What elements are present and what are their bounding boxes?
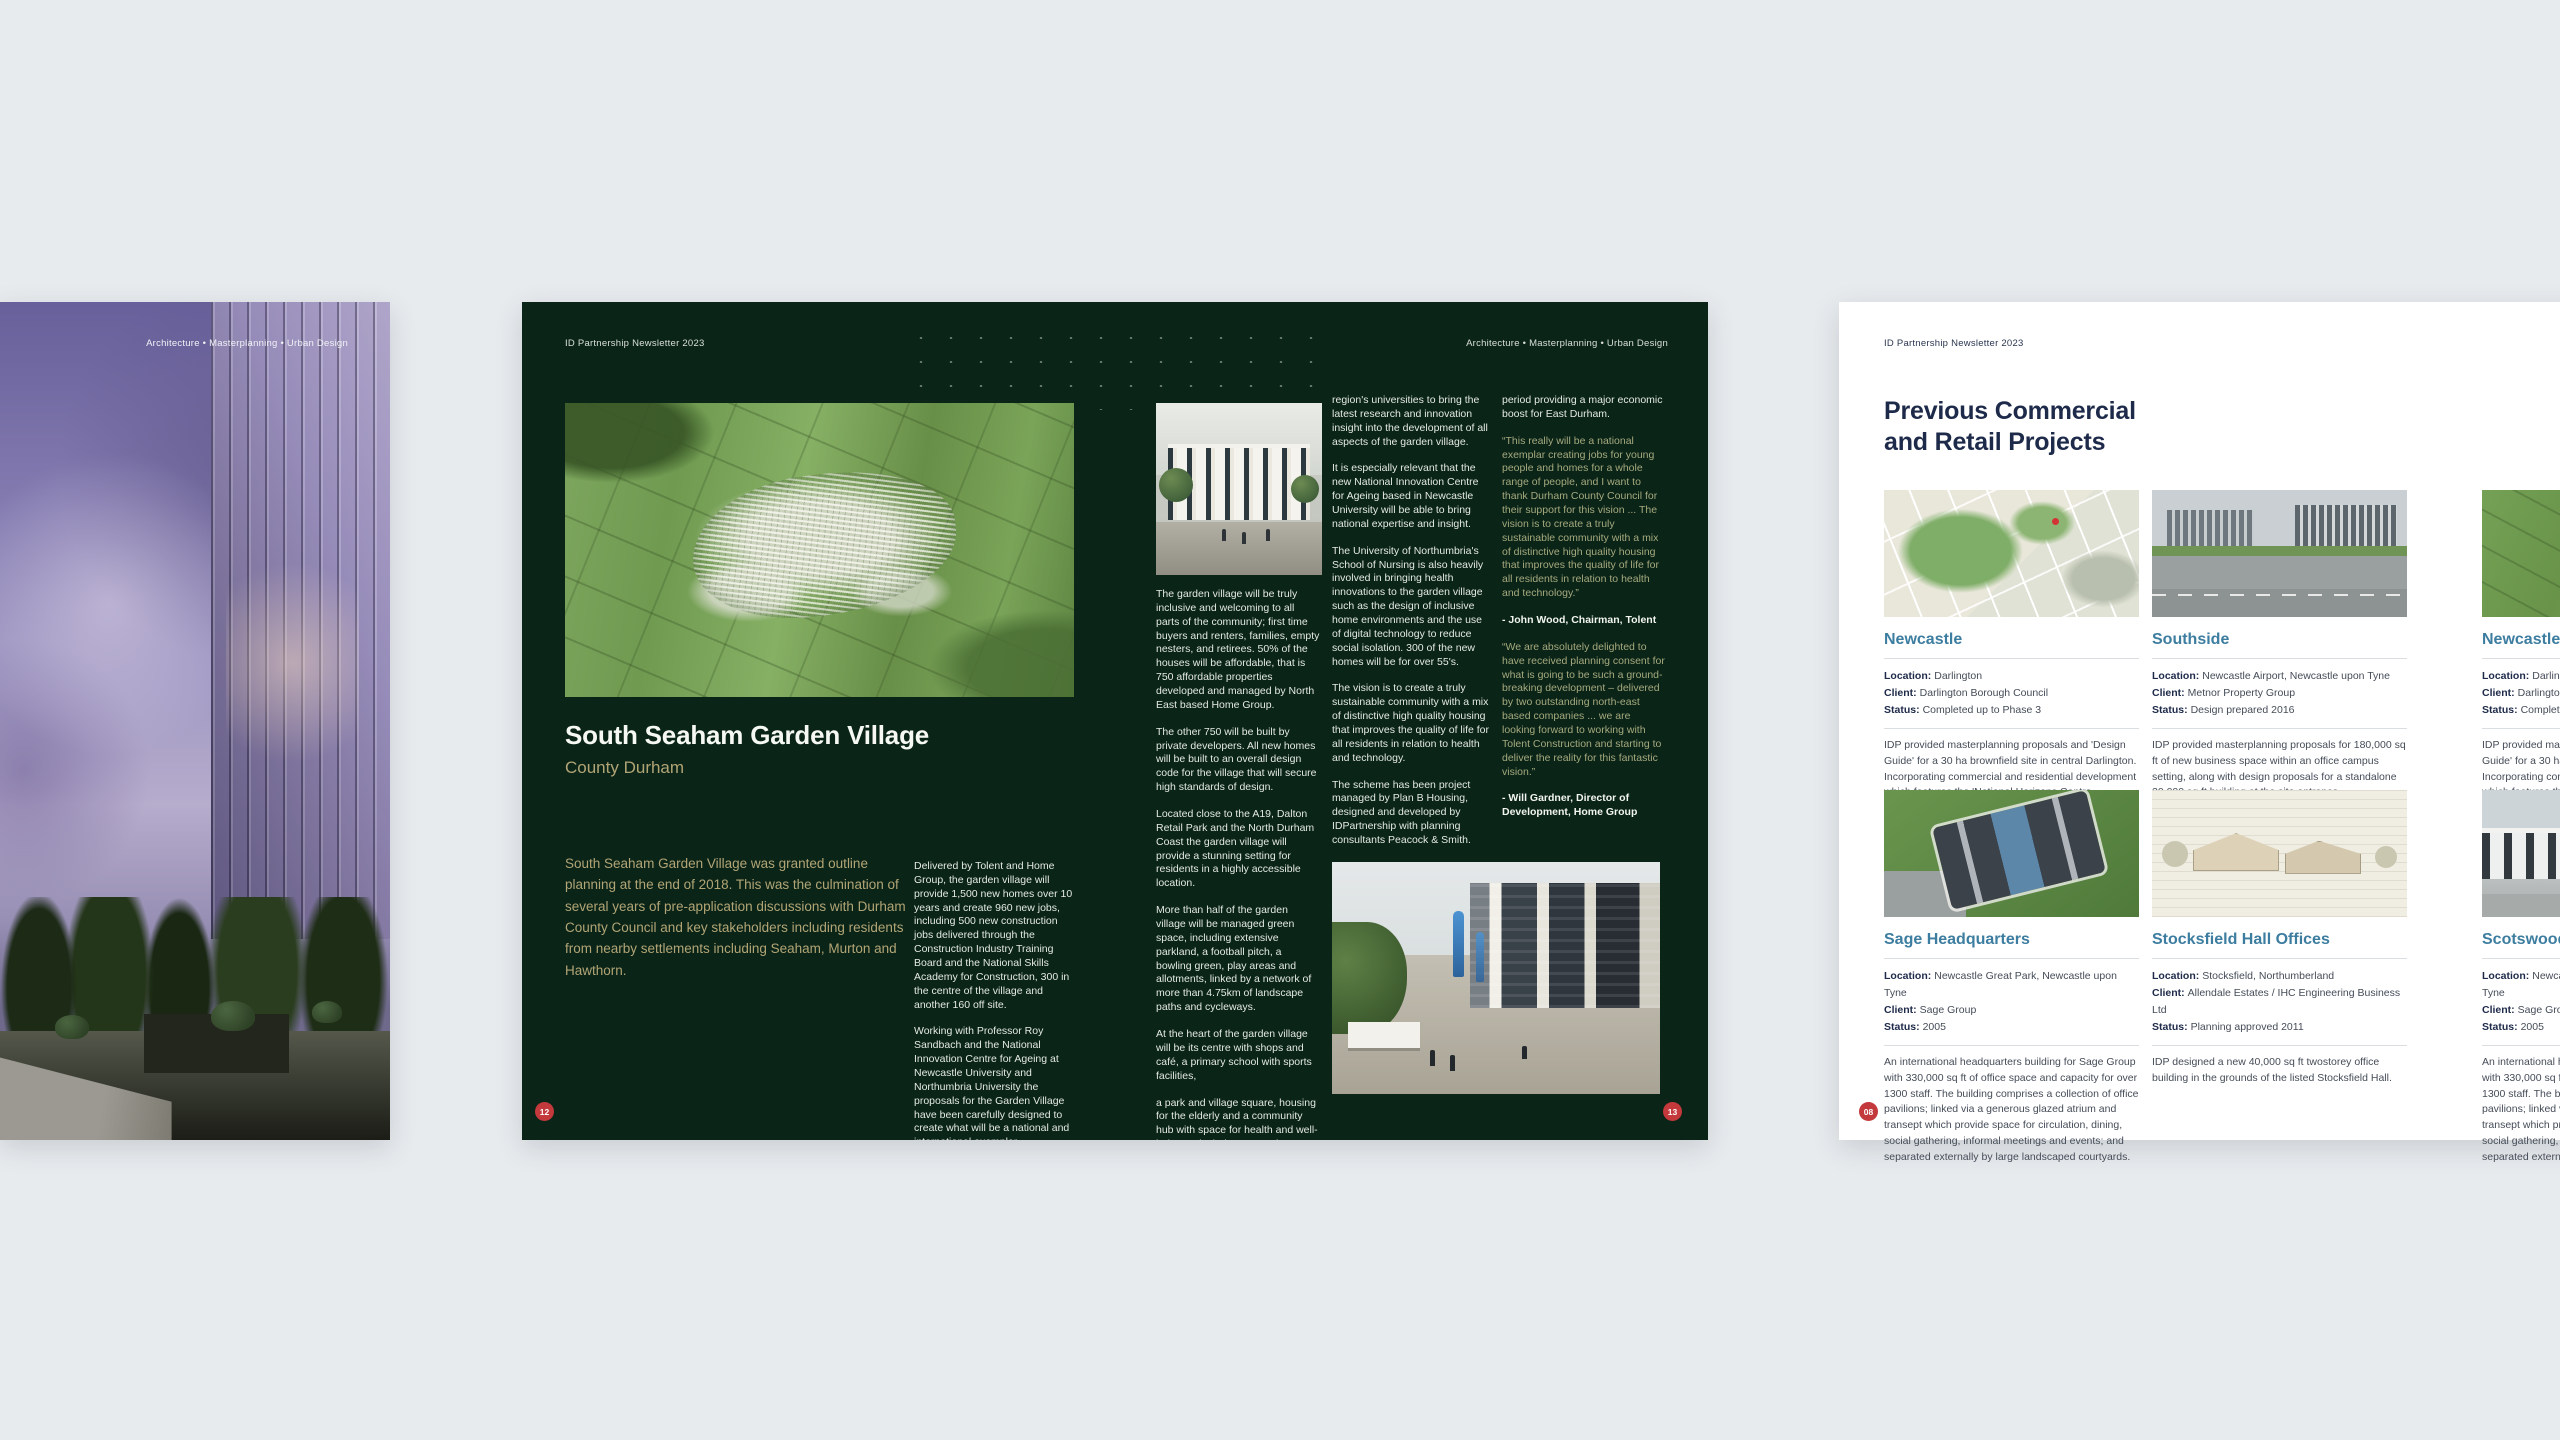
meta-value: 2005 (2521, 1021, 2544, 1033)
project-meta: Location:Darlington Client:Darlington Bo… (1884, 668, 2139, 719)
photo-detail (2162, 841, 2188, 867)
photo-detail (1470, 883, 1660, 1008)
photo-detail (1222, 529, 1226, 541)
meta-value: Design prepared 2016 (2191, 704, 2295, 716)
meta-label: Location: (2152, 970, 2199, 982)
paragraph: At the heart of the garden village will … (1156, 1028, 1320, 1083)
project-description: An international headquarters building f… (1884, 1055, 2139, 1165)
project-meta: Location:Newcastle Great Park, Newcastle… (2482, 968, 2560, 1036)
meta-label: Client: (1884, 1004, 1917, 1016)
project-meta: Location:Darlington Client:Darlington Bo… (2482, 668, 2560, 719)
photo-detail (1932, 790, 2106, 909)
masterplan-aerial-image (565, 403, 1074, 697)
photo-detail (2482, 833, 2560, 879)
text-column-1: Delivered by Tolent and Home Group, the … (914, 860, 1078, 1140)
meta-label: Status: (1884, 1021, 1920, 1033)
meta-value: Sage Group (2518, 1004, 2560, 1016)
project-card-newcastle: Newcastle Location:Darlington Client:Dar… (1884, 490, 2139, 801)
project-image-sage-aerial (1884, 790, 2139, 917)
text-column-4: period providing a major economic boost … (1502, 394, 1666, 833)
photo-detail (685, 458, 965, 630)
paragraph: More than half of the garden village wil… (1156, 904, 1320, 1015)
page-header-tagline: Architecture • Masterplanning • Urban De… (1466, 338, 1668, 349)
divider (2152, 958, 2407, 959)
photo-detail (211, 1001, 255, 1031)
project-image-aerial (2482, 490, 2560, 617)
photo-detail (2193, 833, 2280, 871)
project-title: Newcastle (1884, 631, 2139, 649)
divider (2482, 1045, 2560, 1046)
photo-detail (1348, 1022, 1420, 1048)
meta-value: Darlington Borough Council (1920, 687, 2048, 699)
meta-row: Status:2005 (2482, 1019, 2560, 1036)
meta-value: Darlington (1934, 670, 1982, 682)
meta-row: Client:Sage Group (1884, 1002, 2139, 1019)
project-card-newcastle-2: Newcastle F Location:Darlington Client:D… (2482, 490, 2560, 801)
photo-detail (1453, 911, 1464, 977)
photo-detail (1430, 1050, 1435, 1066)
page-number-badge: 08 (1859, 1102, 1878, 1121)
map-marker-icon (2052, 518, 2059, 525)
meta-value: Darlington Borough Council (2518, 687, 2560, 699)
photo-detail (2152, 594, 2407, 596)
photo-detail (1156, 522, 1322, 575)
photo-detail (1332, 922, 1407, 1033)
meta-row: Client:Darlington Borough Council (1884, 685, 2139, 702)
meta-value: 2005 (1923, 1021, 1946, 1033)
page-photo-left[interactable]: Architecture • Masterplanning • Urban De… (0, 302, 390, 1140)
paragraph: Delivered by Tolent and Home Group, the … (914, 860, 1078, 1012)
project-card-sage: Sage Headquarters Location:Newcastle Gre… (1884, 790, 2139, 1165)
paragraph: The University of Northumbria's School o… (1332, 545, 1492, 670)
article-title: South Seaham Garden Village (565, 720, 929, 751)
dot-grid-decoration (906, 326, 1318, 410)
project-card-scotswood: Scotswood Location:Newcastle Great Park,… (2482, 790, 2560, 1165)
project-meta: Location:Newcastle Airport, Newcastle up… (2152, 668, 2407, 719)
photo-detail (2375, 846, 2397, 868)
meta-row: Status:Design prepared 2016 (2152, 702, 2407, 719)
meta-value: Allendale Estates / IHC Engineering Busi… (2152, 987, 2400, 1016)
meta-value: Completed up to Phase 3 (2521, 704, 2560, 716)
paragraph: Located close to the A19, Dalton Retail … (1156, 808, 1320, 891)
divider (2482, 728, 2560, 729)
meta-label: Location: (1884, 970, 1931, 982)
meta-row: Client:Allendale Estates / IHC Engineeri… (2152, 985, 2407, 1019)
meta-label: Location: (2482, 670, 2529, 682)
meta-label: Status: (2482, 1021, 2518, 1033)
page-header-tagline: Architecture • Masterplanning • Urban De… (146, 338, 348, 349)
text-column-3: region's universities to bring the lates… (1332, 394, 1492, 943)
meta-label: Client: (2152, 687, 2185, 699)
meta-row: Location:Newcastle Airport, Newcastle up… (2152, 668, 2407, 685)
meta-label: Client: (2482, 687, 2515, 699)
divider (1884, 728, 2139, 729)
meta-label: Client: (2152, 987, 2185, 999)
meta-value: Newcastle Airport, Newcastle upon Tyne (2202, 670, 2390, 682)
meta-row: Client:Darlington Borough Council (2482, 685, 2560, 702)
divider (2152, 658, 2407, 659)
photo-detail (1266, 529, 1270, 541)
project-image-offices (2152, 490, 2407, 617)
meta-value: Stocksfield, Northumberland (2202, 970, 2334, 982)
quote-attribution: - Will Gardner, Director of Development,… (1502, 792, 1666, 820)
meta-row: Status:2005 (1884, 1019, 2139, 1036)
meta-row: Location:Newcastle Great Park, Newcastle… (1884, 968, 2139, 1002)
meta-value: Metnor Property Group (2188, 687, 2295, 699)
paragraph: region's universities to bring the lates… (1332, 394, 1492, 449)
page-number-badge: 12 (535, 1102, 554, 1121)
photo-detail (312, 1001, 342, 1023)
newsletter-header: ID Partnership Newsletter 2023 (565, 338, 705, 349)
page-number-badge: 13 (1663, 1102, 1682, 1121)
photo-detail (1242, 532, 1246, 544)
meta-value: Planning approved 2011 (2191, 1021, 2304, 1033)
photo-detail (1522, 1046, 1527, 1059)
paragraph: The other 750 will be built by private d… (1156, 726, 1320, 795)
meta-row: Client:Sage Group (2482, 1002, 2560, 1019)
meta-label: Status: (2152, 704, 2188, 716)
meta-row: Location:Darlington (2482, 668, 2560, 685)
meta-row: Client:Metnor Property Group (2152, 685, 2407, 702)
meta-label: Status: (1884, 704, 1920, 716)
page-title: Previous Commercial and Retail Projects (1884, 396, 2156, 458)
photo-detail (1450, 1055, 1455, 1071)
meta-label: Status: (2482, 704, 2518, 716)
project-meta: Location:Newcastle Great Park, Newcastle… (1884, 968, 2139, 1036)
paragraph: The garden village will be truly inclusi… (1156, 588, 1320, 713)
meta-row: Status:Planning approved 2011 (2152, 1019, 2407, 1036)
meta-label: Location: (2482, 970, 2529, 982)
meta-row: Status:Completed up to Phase 3 (2482, 702, 2560, 719)
paragraph: period providing a major economic boost … (1502, 394, 1666, 422)
project-title: Newcastle F (2482, 631, 2560, 649)
quote-attribution: - John Wood, Chairman, Tolent (1502, 614, 1666, 628)
project-title: Scotswood (2482, 931, 2560, 949)
article-title-block: South Seaham Garden Village County Durha… (565, 720, 929, 778)
project-description: An international headquarters building f… (2482, 1055, 2560, 1165)
pull-quote: “This really will be a national exemplar… (1502, 435, 1666, 601)
divider (1884, 658, 2139, 659)
pull-quote: “We are absolutely delighted to have rec… (1502, 641, 1666, 780)
photo-detail (1291, 475, 1319, 503)
project-meta: Location:Stocksfield, Northumberland Cli… (2152, 968, 2407, 1036)
divider (2152, 728, 2407, 729)
meta-value: Sage Group (1920, 1004, 1977, 1016)
paragraph: The scheme has been project managed by P… (1332, 779, 1492, 848)
page-south-seaham-spread[interactable]: ID Partnership Newsletter 2023 Architect… (522, 302, 1708, 1140)
meta-label: Location: (1884, 670, 1931, 682)
photo-detail (2285, 841, 2362, 874)
divider (2482, 958, 2560, 959)
meta-value: Darlington (2532, 670, 2560, 682)
project-title: Stocksfield Hall Offices (2152, 931, 2407, 949)
divider (2152, 1045, 2407, 1046)
project-title: Sage Headquarters (1884, 931, 2139, 949)
divider (2482, 658, 2560, 659)
innovation-hub-photo (1156, 403, 1322, 575)
meta-row: Status:Completed up to Phase 3 (1884, 702, 2139, 719)
street-scene-photo (1332, 862, 1660, 1094)
meta-row: Location:Darlington (1884, 668, 2139, 685)
design-canvas: Architecture • Masterplanning • Urban De… (0, 0, 2560, 1440)
project-card-southside: Southside Location:Newcastle Airport, Ne… (2152, 490, 2407, 801)
paragraph: a park and village square, housing for t… (1156, 1097, 1320, 1141)
photo-detail (226, 537, 359, 788)
meta-row: Location:Stocksfield, Northumberland (2152, 968, 2407, 985)
paragraph: The vision is to create a truly sustaina… (1332, 682, 1492, 765)
article-intro: South Seaham Garden Village was granted … (565, 853, 915, 981)
project-description: IDP designed a new 40,000 sq ft twostore… (2152, 1055, 2407, 1087)
photo-detail (1476, 932, 1484, 982)
project-title: Southside (2152, 631, 2407, 649)
photo-detail (2152, 546, 2407, 556)
divider (1884, 1045, 2139, 1046)
paragraph: It is especially relevant that the new N… (1332, 462, 1492, 531)
paragraph: Working with Professor Roy Sandbach and … (914, 1025, 1078, 1140)
meta-label: Location: (2152, 670, 2199, 682)
meta-value: Completed up to Phase 3 (1923, 704, 2042, 716)
photo-detail (55, 1015, 89, 1039)
divider (1884, 958, 2139, 959)
article-subtitle: County Durham (565, 758, 929, 778)
text-column-2: The garden village will be truly inclusi… (1156, 588, 1320, 1140)
project-card-stocksfield: Stocksfield Hall Offices Location:Stocks… (2152, 790, 2407, 1087)
newsletter-header: ID Partnership Newsletter 2023 (1884, 338, 2024, 349)
project-image-building (2482, 790, 2560, 917)
meta-row: Location:Newcastle Great Park, Newcastle… (2482, 968, 2560, 1002)
meta-label: Client: (2482, 1004, 2515, 1016)
project-image-sketch (2152, 790, 2407, 917)
meta-label: Client: (1884, 687, 1917, 699)
meta-label: Status: (2152, 1021, 2188, 1033)
project-image-masterplan (1884, 490, 2139, 617)
page-commercial-projects[interactable]: ID Partnership Newsletter 2023 Previous … (1839, 302, 2560, 1140)
